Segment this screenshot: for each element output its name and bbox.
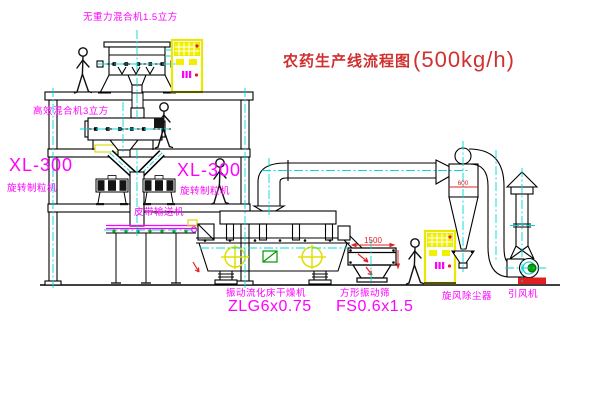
label-granulator-left: 旋转制粒机 <box>7 184 57 194</box>
rotary-granulator-right <box>143 176 175 206</box>
worker-top-floor <box>75 48 92 93</box>
rotary-granulator-left <box>96 176 128 206</box>
label-top-mixer: 无重力混合机1.5立方 <box>83 13 178 23</box>
worker-ground <box>407 239 424 284</box>
label-cyclone: 旋风除尘器 <box>442 292 492 302</box>
label-granulator-mid: 旋转制粒机 <box>180 187 230 197</box>
induced-draft-fan <box>507 259 546 285</box>
cad-flow-diagram: 1500 600 农药生产线流程图 (500kg/h) 无重力混合机1.5立方 … <box>0 0 600 403</box>
vibrating-screen <box>348 244 399 283</box>
label-screen-model: FS0.6x1.5 <box>336 299 413 315</box>
label-fan: 引风机 <box>508 290 538 300</box>
label-granulator-left-model: XL-300 <box>9 156 73 174</box>
exhaust-duct <box>254 160 450 215</box>
control-cabinet-1 <box>171 40 203 92</box>
top-mixer <box>97 42 179 93</box>
drawing-title: 农药生产线流程图 (500kg/h) <box>283 47 515 73</box>
belt-conveyor <box>106 220 197 283</box>
control-cabinet-2 <box>424 231 456 283</box>
screen-width-dimension: 1500 <box>364 236 382 245</box>
label-granulator-mid-model: XL-300 <box>177 161 241 179</box>
cyclone-diameter-dimension: 600 <box>458 180 469 187</box>
label-belt-conveyor: 皮带输送机 <box>134 208 184 218</box>
title-text: 农药生产线流程图 <box>283 50 411 71</box>
title-capacity: (500kg/h) <box>413 47 515 73</box>
label-dryer-model: ZLG6x0.75 <box>228 299 312 315</box>
fluid-bed-dryer <box>193 211 362 284</box>
label-second-floor-mixer: 高效混合机3立方 <box>33 107 109 117</box>
mixer-discharge-pipe <box>132 93 143 108</box>
